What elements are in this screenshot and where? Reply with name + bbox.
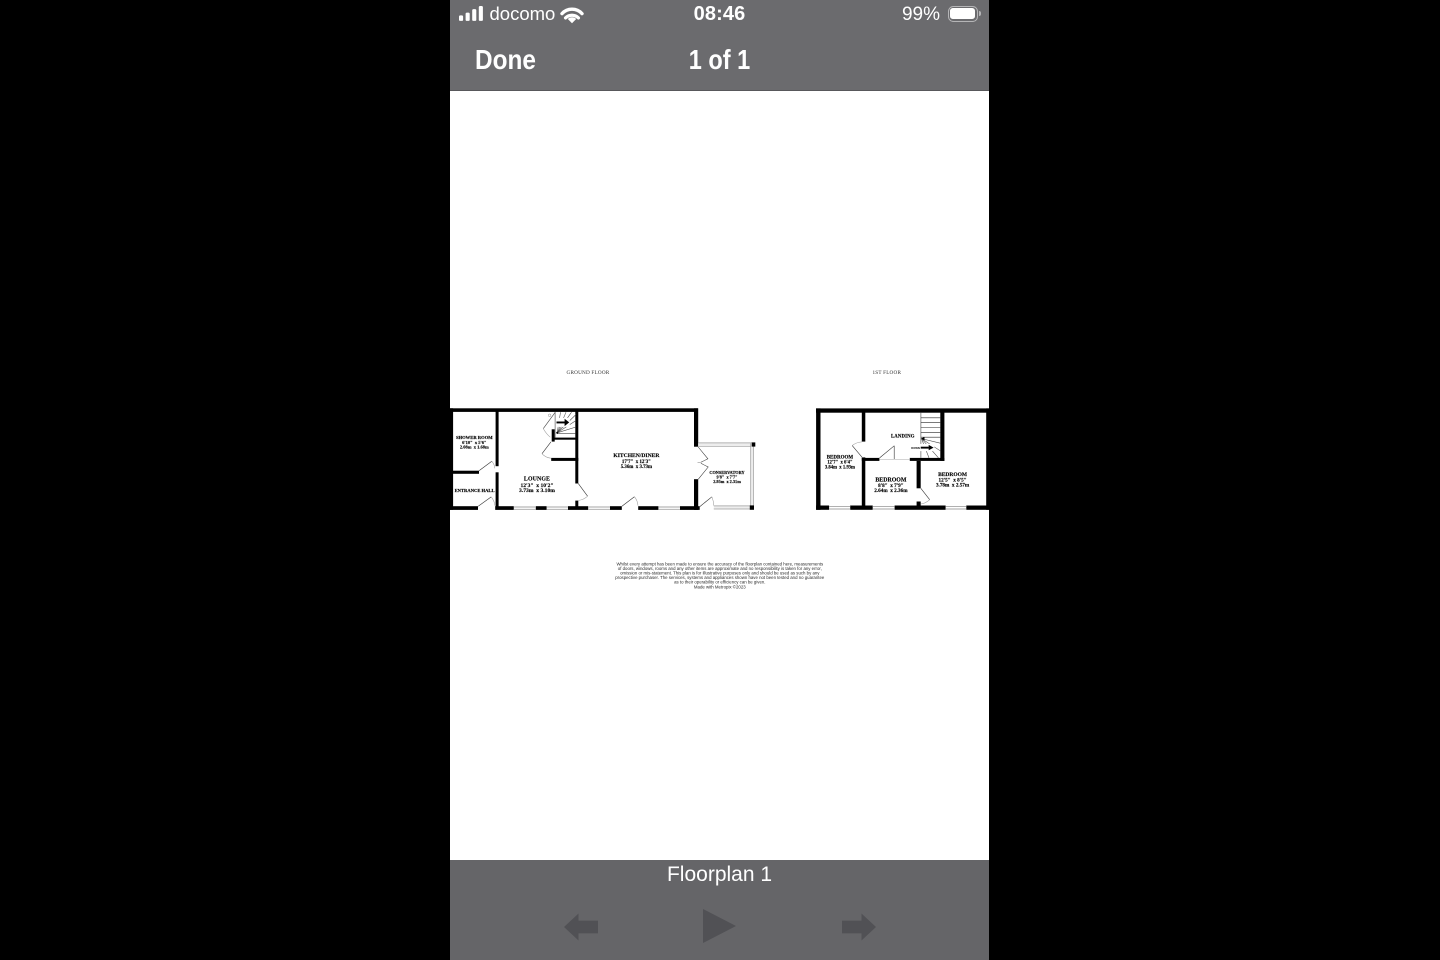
svg-text:3.78m x 2.57m: 3.78m x 2.57m xyxy=(936,483,970,489)
svg-text:3.84m x 1.93m: 3.84m x 1.93m xyxy=(825,465,855,470)
svg-text:3.73m x 3.10m: 3.73m x 3.10m xyxy=(519,488,555,494)
svg-text:1ST FLOOR: 1ST FLOOR xyxy=(872,370,901,376)
svg-text:2.64m x 2.36m: 2.64m x 2.36m xyxy=(874,488,908,494)
svg-text:BEDROOM: BEDROOM xyxy=(827,455,854,460)
svg-text:2.95m x 2.31m: 2.95m x 2.31m xyxy=(713,479,741,484)
svg-text:ENTRANCE HALL: ENTRANCE HALL xyxy=(455,488,495,493)
svg-text:5.36m x 3.73m: 5.36m x 3.73m xyxy=(621,465,652,470)
svg-text:LOUNGE: LOUNGE xyxy=(524,476,550,482)
svg-text:KITCHEN/DINER: KITCHEN/DINER xyxy=(613,453,660,459)
svg-text:Made with Metropix ©2023: Made with Metropix ©2023 xyxy=(694,584,746,589)
svg-text:GROUND FLOOR: GROUND FLOOR xyxy=(567,370,610,376)
svg-text:DOWN: DOWN xyxy=(911,446,920,450)
svg-text:2.08m x 1.68m: 2.08m x 1.68m xyxy=(460,444,489,449)
svg-text:LANDING: LANDING xyxy=(891,434,915,439)
